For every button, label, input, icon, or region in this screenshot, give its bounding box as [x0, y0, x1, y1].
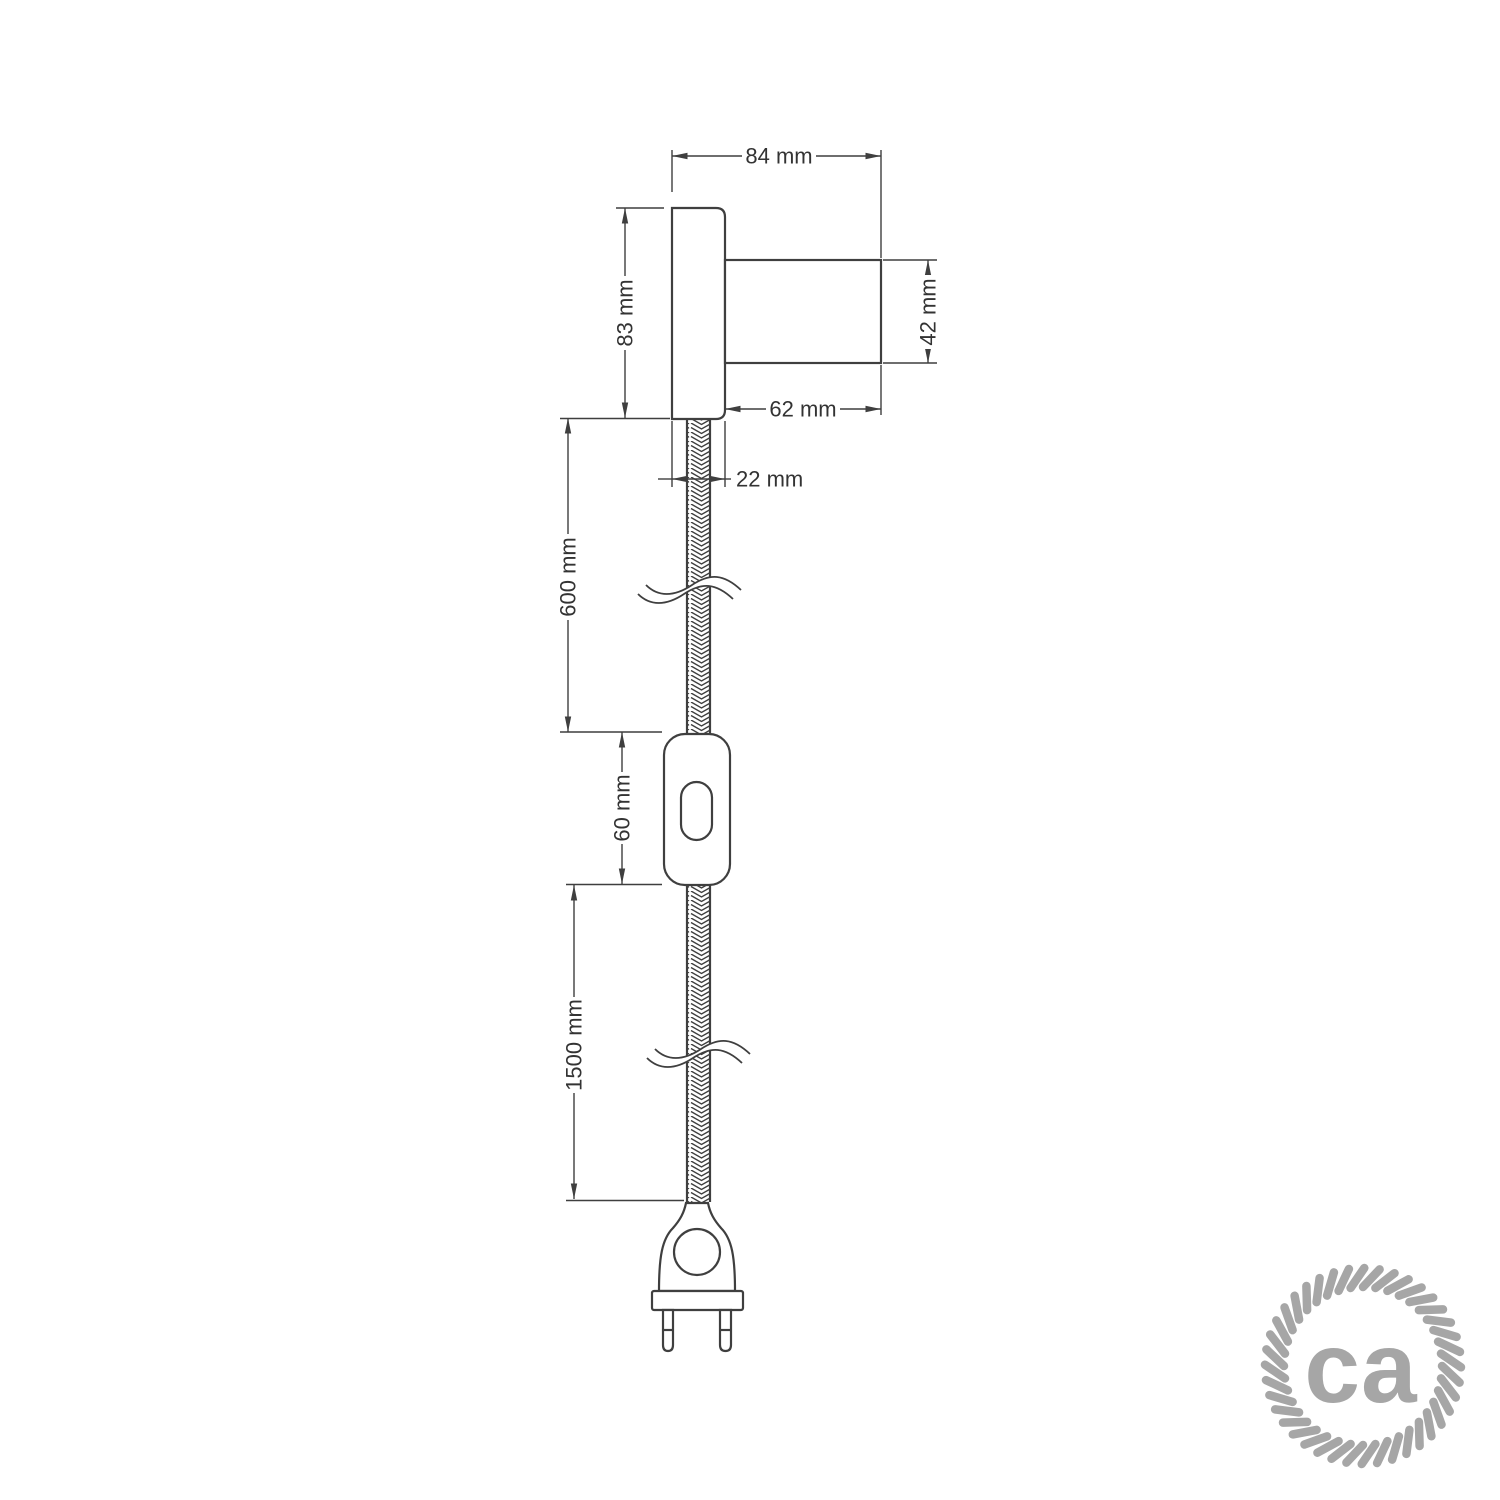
plug-base — [652, 1291, 743, 1310]
dim-label-total-width: 84 mm — [745, 144, 812, 169]
dim-label-holder-length: 62 mm — [769, 397, 836, 422]
switch-rocker — [681, 782, 712, 840]
dim-label-upper-cable-length: 600 mm — [556, 537, 581, 616]
dim-label-plate-depth: 22 mm — [736, 467, 803, 492]
dim-label-lower-cable-length: 1500 mm — [562, 999, 587, 1091]
braided-cable-upper — [687, 419, 710, 735]
plug-screw-hole — [674, 1229, 720, 1275]
dim-label-plate-height: 83 mm — [613, 279, 638, 346]
technical-drawing-wall-lamp: 84 mm 83 mm 42 mm 62 mm 22 mm 600 mm 60 … — [0, 0, 1500, 1500]
logo-text: ca — [1304, 1312, 1418, 1424]
dim-label-holder-diameter: 42 mm — [916, 278, 941, 345]
lamp-holder-cylinder — [725, 260, 881, 363]
canvas-background — [0, 0, 1500, 1500]
dim-label-switch-length: 60 mm — [610, 774, 635, 841]
wall-plate — [672, 208, 725, 419]
braided-cable-lower — [687, 884, 710, 1202]
